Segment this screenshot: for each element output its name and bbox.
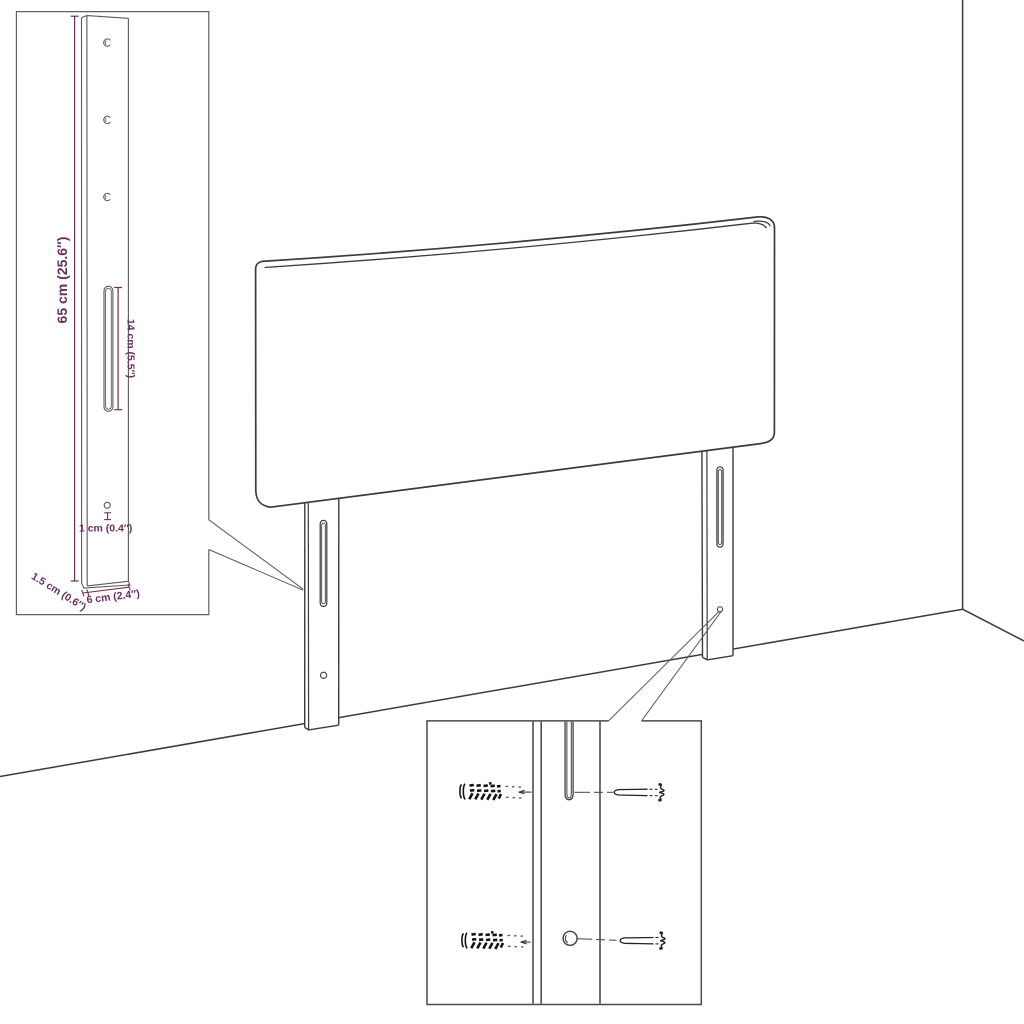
svg-text:1.5 cm (0.6″): 1.5 cm (0.6″) xyxy=(29,570,88,613)
svg-text:6 cm (2.4″): 6 cm (2.4″) xyxy=(86,588,141,606)
svg-text:1 cm (0.4″): 1 cm (0.4″) xyxy=(79,523,132,535)
svg-text:65 cm (25.6″): 65 cm (25.6″) xyxy=(54,237,70,324)
svg-text:14 cm (5.5″): 14 cm (5.5″) xyxy=(125,319,137,378)
